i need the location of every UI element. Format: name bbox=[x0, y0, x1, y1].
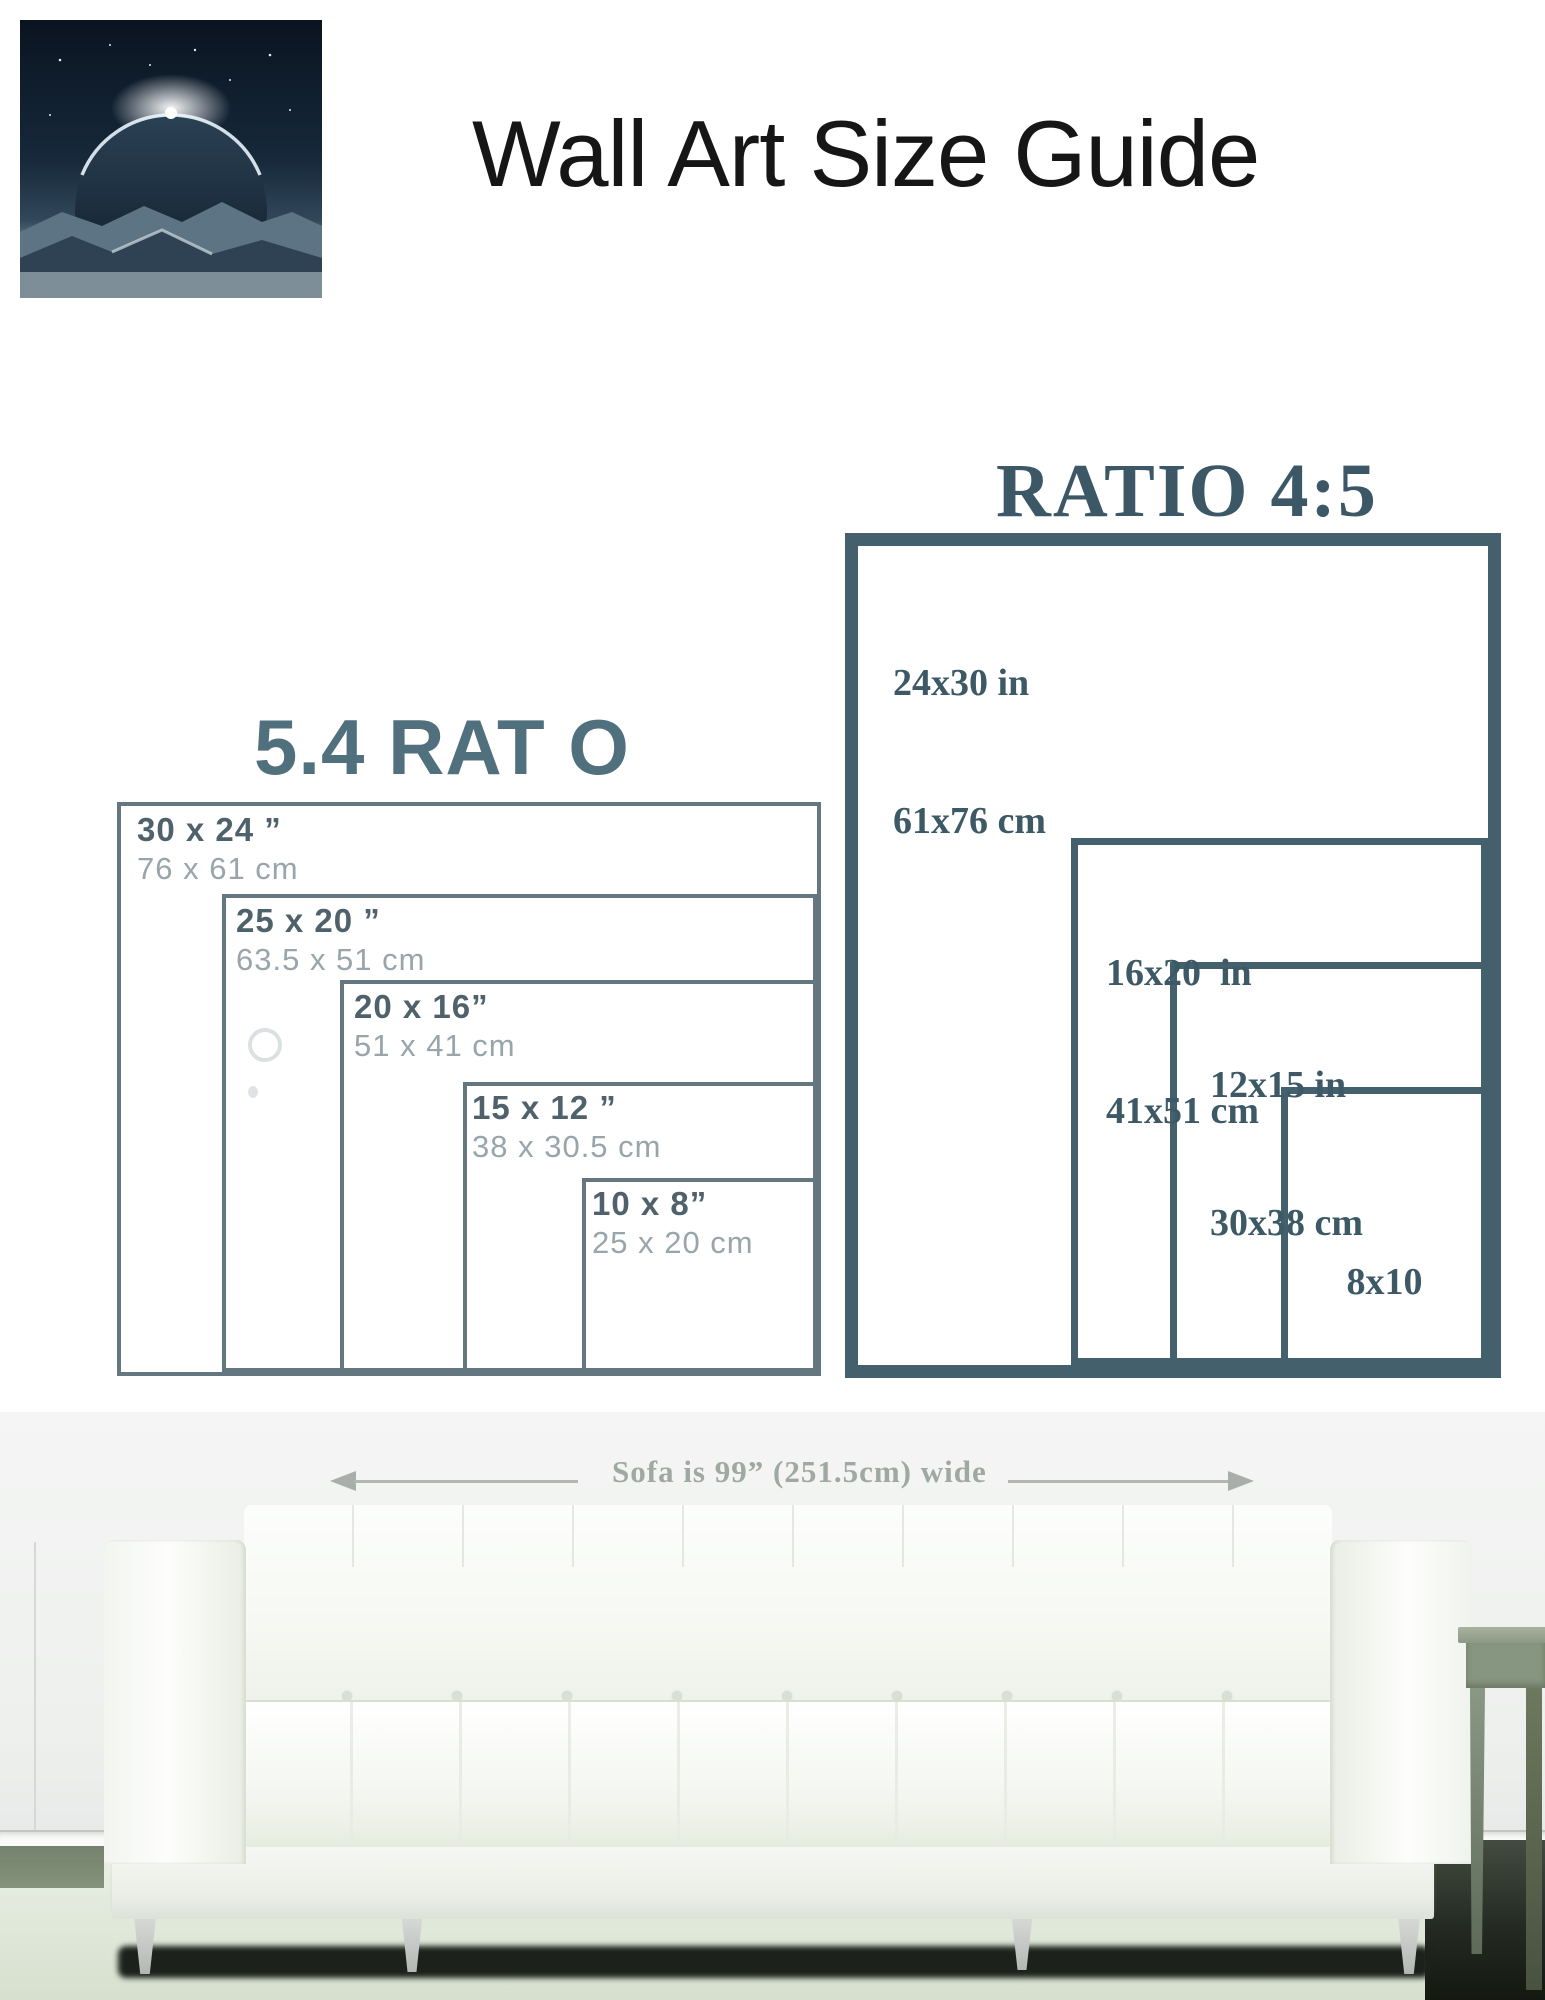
label-10x8: 10 x 8” 25 x 20 cm bbox=[592, 1184, 754, 1262]
sofa-backrest bbox=[244, 1505, 1332, 1705]
side-table-back-leg bbox=[1526, 1688, 1542, 1990]
label-15x12-cm: 38 x 30.5 cm bbox=[472, 1128, 661, 1166]
label-25x20: 25 x 20 ” 63.5 x 51 cm bbox=[236, 901, 425, 979]
label-12x15-in: 12x15 in bbox=[1210, 1062, 1363, 1108]
wall-corner-line bbox=[34, 1542, 36, 1832]
sofa-floor-shadow bbox=[118, 1946, 1430, 1978]
dark-furniture-edge bbox=[0, 1846, 104, 1888]
label-30x24-cm: 76 x 61 cm bbox=[137, 850, 299, 888]
label-10x8-cm: 25 x 20 cm bbox=[592, 1224, 754, 1262]
label-24x30-cm: 61x76 cm bbox=[893, 798, 1046, 844]
sofa-left-arm bbox=[104, 1540, 246, 1864]
backrest-seams bbox=[244, 1505, 1332, 1567]
label-15x12-in: 15 x 12 ” bbox=[472, 1088, 661, 1128]
left-arrow-line bbox=[354, 1480, 578, 1483]
label-20x16-in: 20 x 16” bbox=[354, 987, 516, 1027]
ratio45-title: RATIO 4:5 bbox=[996, 448, 1378, 535]
scan-stain-small bbox=[248, 1086, 258, 1098]
label-24x30: 24x30 in 61x76 cm bbox=[893, 568, 1046, 936]
label-8x10-line1: 8x10 bbox=[1288, 1254, 1481, 1311]
label-30x24-in: 30 x 24 ” bbox=[137, 810, 299, 850]
label-10x8-in: 10 x 8” bbox=[592, 1184, 754, 1224]
label-30x24: 30 x 24 ” 76 x 61 cm bbox=[137, 810, 299, 888]
sofa-scale-photo: Sofa is 99” (251.5cm) wide bbox=[0, 1412, 1545, 2000]
left-arrowhead-icon bbox=[330, 1471, 356, 1491]
ratio54-title: 5.4 RAT O bbox=[254, 702, 630, 793]
sofa-width-label: Sofa is 99” (251.5cm) wide bbox=[612, 1454, 987, 1490]
page-title: Wall Art Size Guide bbox=[472, 100, 1259, 208]
logo-fog bbox=[20, 272, 322, 298]
sofa-seat-cushion bbox=[244, 1700, 1332, 1847]
right-arrow-line bbox=[1008, 1480, 1230, 1483]
seat-seams bbox=[244, 1702, 1332, 1847]
label-20x16: 20 x 16” 51 x 41 cm bbox=[354, 987, 516, 1065]
side-table-apron bbox=[1466, 1643, 1545, 1688]
label-25x20-in: 25 x 20 ” bbox=[236, 901, 425, 941]
brand-logo: O W Ξ bbox=[20, 20, 322, 298]
right-arrowhead-icon bbox=[1228, 1471, 1254, 1491]
scan-stain-large bbox=[248, 1028, 282, 1062]
label-15x12: 15 x 12 ” 38 x 30.5 cm bbox=[472, 1088, 661, 1166]
logo-sun bbox=[165, 107, 177, 119]
sofa-base-rail bbox=[112, 1843, 1434, 1919]
label-25x20-cm: 63.5 x 51 cm bbox=[236, 941, 425, 979]
sofa-right-arm bbox=[1330, 1540, 1472, 1864]
wall-art-size-guide-page: O W Ξ Wall Art Size Guide RATIO 4:5 24x3… bbox=[0, 0, 1545, 2000]
side-table-top bbox=[1458, 1627, 1545, 1643]
label-24x30-in: 24x30 in bbox=[893, 660, 1046, 706]
label-20x16-cm: 51 x 41 cm bbox=[354, 1027, 516, 1065]
